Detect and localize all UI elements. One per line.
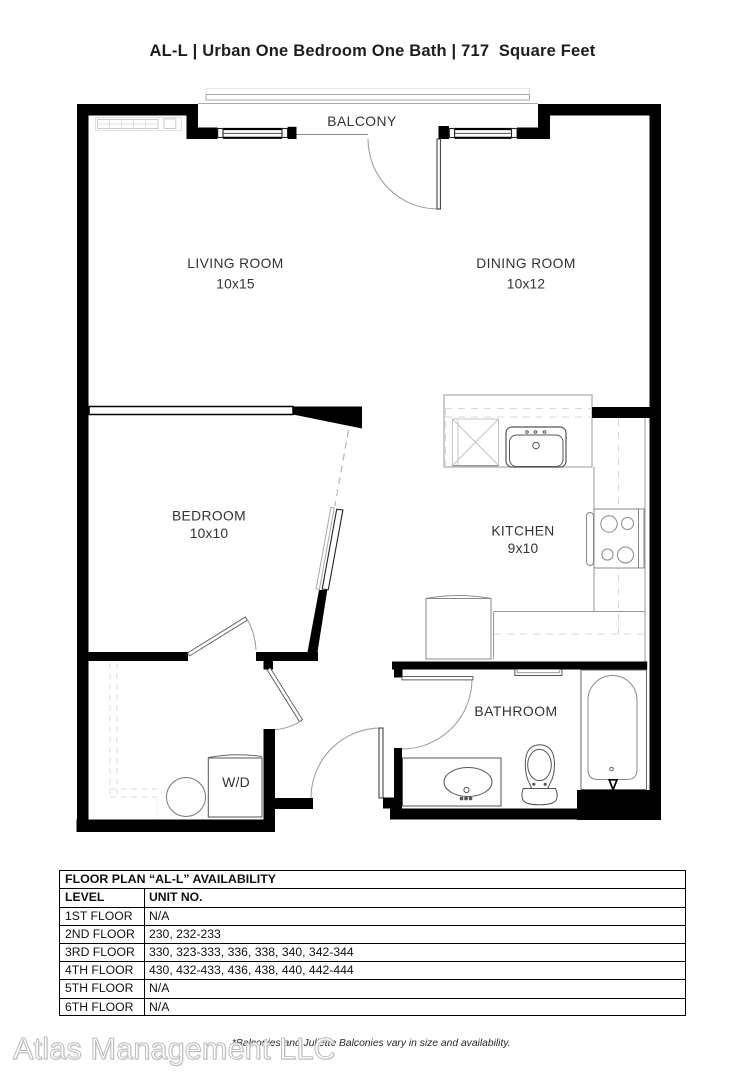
svg-text:10x15: 10x15 bbox=[216, 277, 255, 292]
svg-text:BEDROOM: BEDROOM bbox=[172, 509, 246, 524]
svg-text:LIVING ROOM: LIVING ROOM bbox=[187, 256, 283, 271]
svg-text:DINING ROOM: DINING ROOM bbox=[476, 256, 575, 271]
svg-text:BALCONY: BALCONY bbox=[327, 114, 396, 129]
svg-text:KITCHEN: KITCHEN bbox=[491, 524, 554, 539]
svg-text:BATHROOM: BATHROOM bbox=[474, 703, 557, 719]
svg-text:10x10: 10x10 bbox=[190, 526, 229, 541]
svg-text:W/D: W/D bbox=[222, 774, 250, 790]
svg-text:10x12: 10x12 bbox=[507, 277, 546, 292]
svg-text:9x10: 9x10 bbox=[508, 541, 539, 556]
